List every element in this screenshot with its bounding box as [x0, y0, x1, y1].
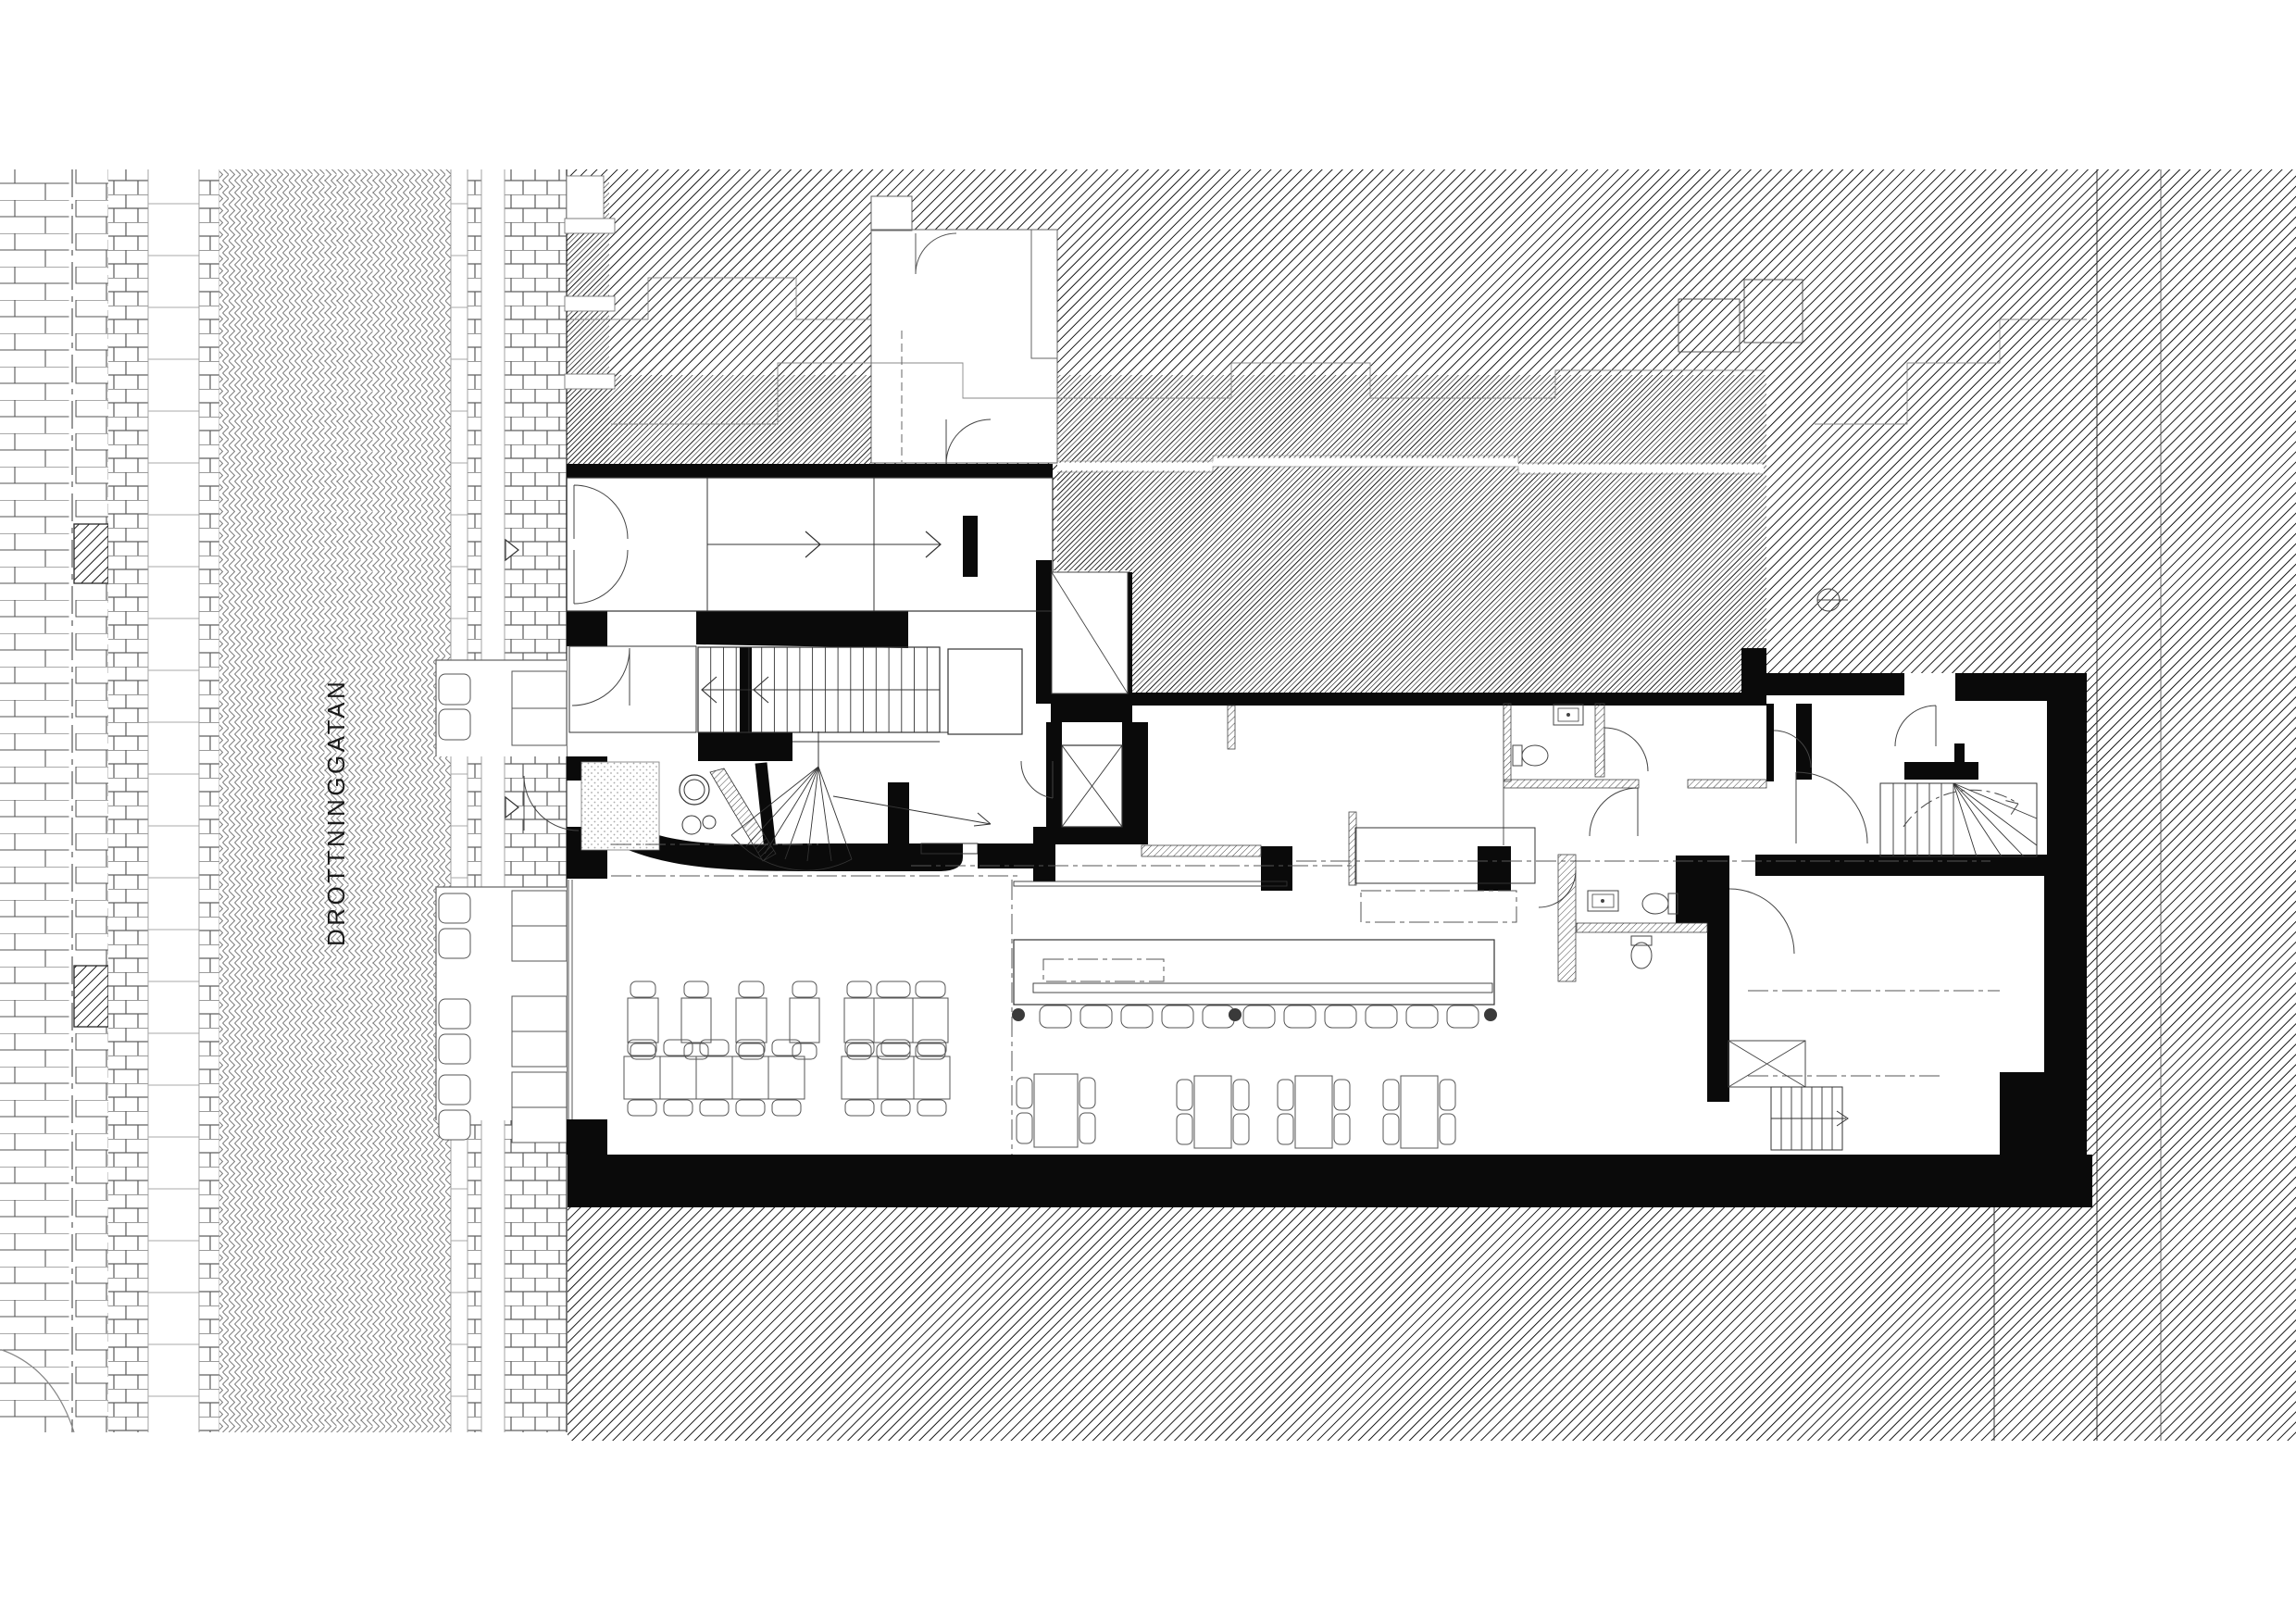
svg-text:DROTTNINGGATAN: DROTTNINGGATAN [322, 679, 350, 946]
